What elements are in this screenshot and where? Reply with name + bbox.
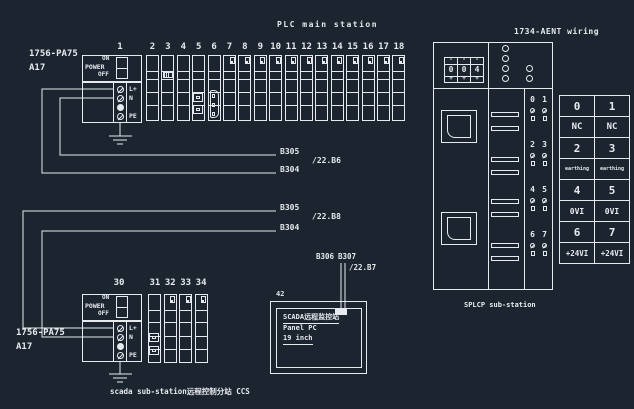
aent-terminal-slot-0 (531, 116, 535, 121)
main-slot-10-line-1 (269, 79, 282, 80)
main-psu-off-label: OFF (98, 72, 109, 79)
aent-col-divider-1 (488, 42, 489, 290)
ground-symbol-sub (109, 362, 132, 382)
main-slot-4-line-2 (177, 92, 190, 93)
main-psu-terminal-circle-1 (117, 95, 124, 102)
wire-label-b304-lower: B304 (280, 224, 299, 233)
main-slot-column-7 (223, 55, 236, 121)
main-slot-16-line-0 (362, 71, 375, 72)
wiring-table-cell-r2c0: 2 (559, 137, 595, 159)
sub-psu-terminal-circle-0-slash (117, 326, 123, 332)
sub-slot-31-line-0 (148, 310, 161, 311)
main-slot-5-port-icon-1-inner (196, 96, 200, 99)
main-slot-2-line-1 (146, 79, 159, 80)
sub-psu-terminal-circle-1 (117, 334, 124, 341)
sub-psu-terminal-pe: PE (129, 352, 137, 359)
aent-col-divider-2 (524, 88, 525, 290)
aent-terminal-slot-3 (543, 161, 547, 166)
main-slot-3-line-1 (161, 79, 174, 80)
main-slot-8-line-0 (238, 71, 251, 72)
aent-module-bar-7 (491, 256, 519, 261)
aent-module-bar-6 (491, 243, 519, 248)
main-psu-terminal-circle-1-slash (117, 96, 123, 102)
sub-psu-terminal-circle-2 (117, 343, 124, 350)
aent-module-bar-4 (491, 199, 519, 204)
main-slot-17-line-3 (377, 105, 390, 106)
sub-psu-label-1: 1756-PA75 (16, 329, 65, 339)
main-slot-7-line-0 (223, 71, 236, 72)
aent-thumbwheel-digit-0: 0 (444, 66, 458, 75)
main-slot-13-line-1 (315, 79, 328, 80)
main-slot-17-module-icon-notch (385, 61, 387, 64)
main-slot-6-dsub-pin-0 (212, 94, 215, 98)
aent-led-b-1 (526, 75, 533, 82)
aent-terminal-slot-5 (543, 206, 547, 211)
aent-terminal-label-3: 3 (541, 141, 549, 150)
aent-terminal-slot-6 (531, 251, 535, 256)
ground-symbol-main (109, 123, 132, 144)
main-slot-4-line-1 (177, 79, 190, 80)
main-slot-13-line-2 (315, 92, 328, 93)
main-slot-8-line-1 (238, 79, 251, 80)
main-slot-8-line-2 (238, 92, 251, 93)
aent-terminal-screw-6-slash (530, 244, 534, 248)
aent-led-a-2 (502, 65, 509, 72)
main-slot-3-line-2 (161, 92, 174, 93)
main-slot-column-10 (269, 55, 282, 121)
main-slot-column-18 (392, 55, 405, 121)
aent-thumbwheel-minus-1: - (457, 57, 471, 64)
wiring-table-cell-r6c1: 7 (594, 221, 630, 243)
panel-pc-tag: 42 (276, 291, 284, 299)
main-psu-on-label: ON (102, 56, 109, 63)
main-slot-6-dsub-pin-2 (212, 112, 215, 116)
main-slot-5-port-icon-2-inner (196, 108, 200, 111)
sub-psu-off-label: OFF (98, 311, 109, 318)
sub-slot-32-line-1 (164, 322, 177, 323)
aent-terminal-screw-2 (530, 153, 535, 158)
aent-port-icon-1-inner (447, 217, 471, 240)
main-slot-18-module-icon-notch (400, 61, 402, 64)
aent-terminal-label-5: 5 (541, 186, 549, 195)
aent-module-bar-5 (491, 212, 519, 217)
panel-pc-line-3: 19 inch (283, 335, 313, 345)
sub-station-caption: scada sub-station远程控制分站 CCS (110, 388, 250, 396)
aent-title: 1734-AENT wiring (514, 28, 599, 37)
main-slot-2-line-2 (146, 92, 159, 93)
wiring-table-cell-r0c0: 0 (559, 95, 595, 117)
main-slot-6-line-0 (208, 71, 221, 72)
main-slot-14-line-0 (331, 71, 344, 72)
sub-slot-number-34: 34 (193, 279, 210, 289)
main-psu-terminal-circle-3 (117, 113, 124, 120)
aent-port-icon-0-inner (447, 115, 471, 138)
main-slot-3-key-bar-1 (166, 73, 167, 77)
aent-led-b-0 (526, 65, 533, 72)
aent-terminal-slot-7 (543, 251, 547, 256)
main-slot-12-line-3 (300, 105, 313, 106)
main-slot-15-line-2 (346, 92, 359, 93)
main-slot-3-key-bar-2 (168, 73, 169, 77)
main-slot-15-line-3 (346, 105, 359, 106)
main-psu-terminal-pe: PE (129, 113, 137, 120)
panel-pc-line-1: SCADA远程监控站 (283, 314, 339, 324)
wiring-table-cell-r5c1: 0VI (594, 200, 630, 222)
aent-terminal-screw-0-slash (530, 109, 534, 113)
aent-thumbwheel-plus-0: + (444, 76, 458, 83)
aent-terminal-slot-4 (531, 206, 535, 211)
aent-thumbwheel-minus-2: - (470, 57, 484, 64)
wiring-table-cell-r5c0: 0VI (559, 200, 595, 222)
wire-label-b307: B307 (338, 253, 356, 261)
main-slot-number-1: 1 (107, 43, 133, 53)
wiring-table-cell-r4c0: 4 (559, 179, 595, 201)
main-slot-11-line-2 (285, 92, 298, 93)
aent-led-a-0 (502, 45, 509, 52)
main-slot-7-line-1 (223, 79, 236, 80)
main-slot-7-line-3 (223, 105, 236, 106)
sub-slot-32-module-icon-notch (171, 300, 173, 303)
wire-ref-upper: /22.B6 (312, 157, 341, 166)
aent-terminal-label-7: 7 (541, 231, 549, 240)
main-slot-10-line-2 (269, 92, 282, 93)
main-slot-column-3 (161, 55, 174, 121)
aent-thumbwheel-digit-2: 4 (470, 66, 484, 75)
main-slot-8-module-icon-notch (246, 61, 248, 64)
aent-terminal-screw-3-slash (542, 154, 546, 158)
main-slot-column-14 (331, 55, 344, 121)
sub-psu-terminal-n: N (129, 334, 133, 341)
sub-slot-number-30: 30 (106, 279, 132, 289)
sub-slot-31-port-icon-1-inner (152, 336, 156, 339)
main-slot-12-module-icon-notch (308, 61, 310, 64)
wiring-table-cell-r2c1: 3 (594, 137, 630, 159)
wire-label-b304-upper: B304 (280, 166, 299, 175)
sub-slot-column-33 (179, 294, 192, 363)
wire-ref-lower: /22.B8 (312, 213, 341, 222)
aent-terminal-slot-2 (531, 161, 535, 166)
wiring-table-cell-r7c1: +24VI (594, 242, 630, 264)
main-slot-2-line-0 (146, 71, 159, 72)
wire-label-b306: B306 (316, 253, 334, 261)
main-slot-5-line-1 (192, 79, 205, 80)
main-slot-4-line-0 (177, 71, 190, 72)
main-slot-12-line-0 (300, 71, 313, 72)
aent-led-a-1 (502, 55, 509, 62)
main-slot-column-17 (377, 55, 390, 121)
aent-terminal-screw-1-slash (542, 109, 546, 113)
aent-module-bar-2 (491, 157, 519, 162)
main-slot-15-line-0 (346, 71, 359, 72)
aent-thumbwheel-plus-2: + (470, 76, 484, 83)
wire-label-b305-lower: B305 (280, 204, 299, 213)
sub-slot-31-port-icon-2-inner (152, 349, 156, 352)
main-slot-18-line-3 (392, 105, 405, 106)
sub-slot-column-32 (164, 294, 177, 363)
sub-psu-label-2: A17 (16, 343, 32, 353)
main-slot-11-module-icon-notch (292, 61, 294, 64)
main-slot-14-module-icon-notch (338, 61, 340, 64)
aent-top-divider (433, 88, 553, 89)
main-slot-12-line-1 (300, 79, 313, 80)
sub-slot-33-module-icon-notch (187, 300, 189, 303)
main-psu-terminal-n: N (129, 95, 133, 102)
sub-psu-terminal-circle-3-slash (117, 353, 123, 359)
sub-slot-32-line-2 (164, 336, 177, 337)
aent-terminal-slot-1 (543, 116, 547, 121)
aent-module-bar-3 (491, 170, 519, 175)
wiring-table-cell-r7c0: +24VI (559, 242, 595, 264)
aent-terminal-screw-2-slash (530, 154, 534, 158)
aent-thumbwheel-plus-1: + (457, 76, 471, 83)
main-psu-switch-line (116, 68, 128, 69)
main-slot-9-module-icon-notch (261, 61, 263, 64)
main-slot-9-line-0 (254, 71, 267, 72)
main-slot-16-module-icon-notch (369, 61, 371, 64)
main-slot-16-line-2 (362, 92, 375, 93)
main-psu-terminal-circle-2 (117, 104, 124, 111)
main-slot-5-line-0 (192, 71, 205, 72)
main-slot-12-line-2 (300, 92, 313, 93)
aent-thumbwheel-minus-0: - (444, 57, 458, 64)
wiring-table-cell-r1c1: NC (594, 116, 630, 138)
aent-terminal-screw-7-slash (542, 244, 546, 248)
main-slot-9-line-2 (254, 92, 267, 93)
main-slot-column-11 (285, 55, 298, 121)
sub-slot-column-34 (195, 294, 208, 363)
main-slot-11-line-3 (285, 105, 298, 106)
sub-psu-on-label: ON (102, 295, 109, 302)
sub-slot-31-line-1 (148, 322, 161, 323)
aent-terminal-screw-5-slash (542, 199, 546, 203)
main-slot-9-line-1 (254, 79, 267, 80)
main-slot-4-line-3 (177, 105, 190, 106)
main-slot-10-line-0 (269, 71, 282, 72)
aent-terminal-screw-5 (542, 198, 547, 203)
main-slot-13-module-icon-notch (323, 61, 325, 64)
wiring-table-cell-r3c1: earthing (594, 158, 630, 180)
sub-slot-33-line-0 (179, 310, 192, 311)
main-slot-17-line-0 (377, 71, 390, 72)
main-psu-label-1: 1756-PA75 (29, 50, 78, 60)
main-slot-7-module-icon-notch (231, 61, 233, 64)
main-slot-14-line-1 (331, 79, 344, 80)
main-slot-11-line-0 (285, 71, 298, 72)
aent-terminal-screw-1 (542, 108, 547, 113)
main-slot-10-module-icon-notch (277, 61, 279, 64)
main-slot-column-13 (315, 55, 328, 121)
sub-psu-switch-line (116, 307, 128, 308)
main-station-title: PLC main station (277, 21, 378, 30)
aent-terminal-label-6: 6 (529, 231, 537, 240)
sub-slot-32-line-0 (164, 310, 177, 311)
sub-slot-33-line-2 (179, 336, 192, 337)
main-slot-6-dsub-pin-1 (212, 103, 215, 107)
main-psu-label-2: A17 (29, 64, 45, 74)
sub-slot-34-line-0 (195, 310, 208, 311)
main-slot-14-line-3 (331, 105, 344, 106)
plc-wiring-diagram: PLC main station 1756-PA75 A17 B305 /22.… (0, 0, 634, 409)
aent-terminal-label-2: 2 (529, 141, 537, 150)
main-slot-16-line-3 (362, 105, 375, 106)
sub-slot-33-line-1 (179, 322, 192, 323)
aent-terminal-screw-4 (530, 198, 535, 203)
main-slot-13-line-0 (315, 71, 328, 72)
main-slot-8-line-3 (238, 105, 251, 106)
main-slot-9-line-3 (254, 105, 267, 106)
main-slot-18-line-1 (392, 79, 405, 80)
main-slot-14-line-2 (331, 92, 344, 93)
main-psu-terminal-circle-0-slash (117, 87, 123, 93)
aent-terminal-label-0: 0 (529, 96, 537, 105)
main-slot-17-line-1 (377, 79, 390, 80)
wiring-table-cell-r4c1: 5 (594, 179, 630, 201)
main-slot-18-line-2 (392, 92, 405, 93)
main-slot-7-line-2 (223, 92, 236, 93)
wire-label-b305-upper: B305 (280, 148, 299, 157)
main-slot-3-key-bar-0 (164, 73, 165, 77)
aent-terminal-screw-0 (530, 108, 535, 113)
main-slot-11-line-1 (285, 79, 298, 80)
main-psu-terminal-circle-0 (117, 86, 124, 93)
main-slot-3-line-3 (161, 105, 174, 106)
main-slot-18-line-0 (392, 71, 405, 72)
main-slot-17-line-2 (377, 92, 390, 93)
main-slot-column-9 (254, 55, 267, 121)
main-slot-2-line-3 (146, 105, 159, 106)
main-slot-16-line-1 (362, 79, 375, 80)
aent-terminal-label-1: 1 (541, 96, 549, 105)
sub-psu-terminal-circle-1-slash (117, 335, 123, 341)
wiring-table-cell-r1c0: NC (559, 116, 595, 138)
aent-module-bar-1 (491, 126, 519, 131)
main-slot-column-8 (238, 55, 251, 121)
aent-terminal-label-4: 4 (529, 186, 537, 195)
wire-ref-panel: /22.B7 (349, 264, 376, 272)
sub-psu-terminal-circle-0 (117, 325, 124, 332)
main-slot-column-12 (300, 55, 313, 121)
main-slot-column-15 (346, 55, 359, 121)
aent-led-a-3 (502, 75, 509, 82)
main-psu-terminal-lplus: L+ (129, 86, 137, 93)
sub-slot-32-line-3 (164, 349, 177, 350)
wiring-table-cell-r6c0: 6 (559, 221, 595, 243)
sub-psu-terminal-lplus: L+ (129, 325, 137, 332)
sub-slot-34-module-icon-notch (202, 300, 204, 303)
main-slot-10-line-3 (269, 105, 282, 106)
aent-terminal-screw-4-slash (530, 199, 534, 203)
wiring-table-cell-r0c1: 1 (594, 95, 630, 117)
main-slot-column-16 (362, 55, 375, 121)
aent-terminal-screw-7 (542, 243, 547, 248)
main-psu-terminal-circle-3-slash (117, 114, 123, 120)
wiring-table-cell-r3c0: earthing (559, 158, 595, 180)
main-slot-15-module-icon-notch (354, 61, 356, 64)
sub-slot-34-line-1 (195, 322, 208, 323)
main-slot-number-18: 18 (390, 43, 407, 53)
main-slot-15-line-1 (346, 79, 359, 80)
sub-slot-33-line-3 (179, 349, 192, 350)
aent-module-bar-0 (491, 112, 519, 117)
aent-thumbwheel-digit-1: 0 (457, 66, 471, 75)
splcp-caption: SPLCP sub-station (464, 302, 536, 310)
main-slot-13-line-3 (315, 105, 328, 106)
main-slot-column-2 (146, 55, 159, 121)
main-slot-column-4 (177, 55, 190, 121)
main-slot-6-line-1 (208, 79, 221, 80)
aent-terminal-screw-3 (542, 153, 547, 158)
sub-psu-terminal-circle-3 (117, 352, 124, 359)
sub-slot-34-line-2 (195, 336, 208, 337)
aent-terminal-screw-6 (530, 243, 535, 248)
sub-slot-34-line-3 (195, 349, 208, 350)
panel-pc-line-2: Panel PC (283, 325, 317, 333)
